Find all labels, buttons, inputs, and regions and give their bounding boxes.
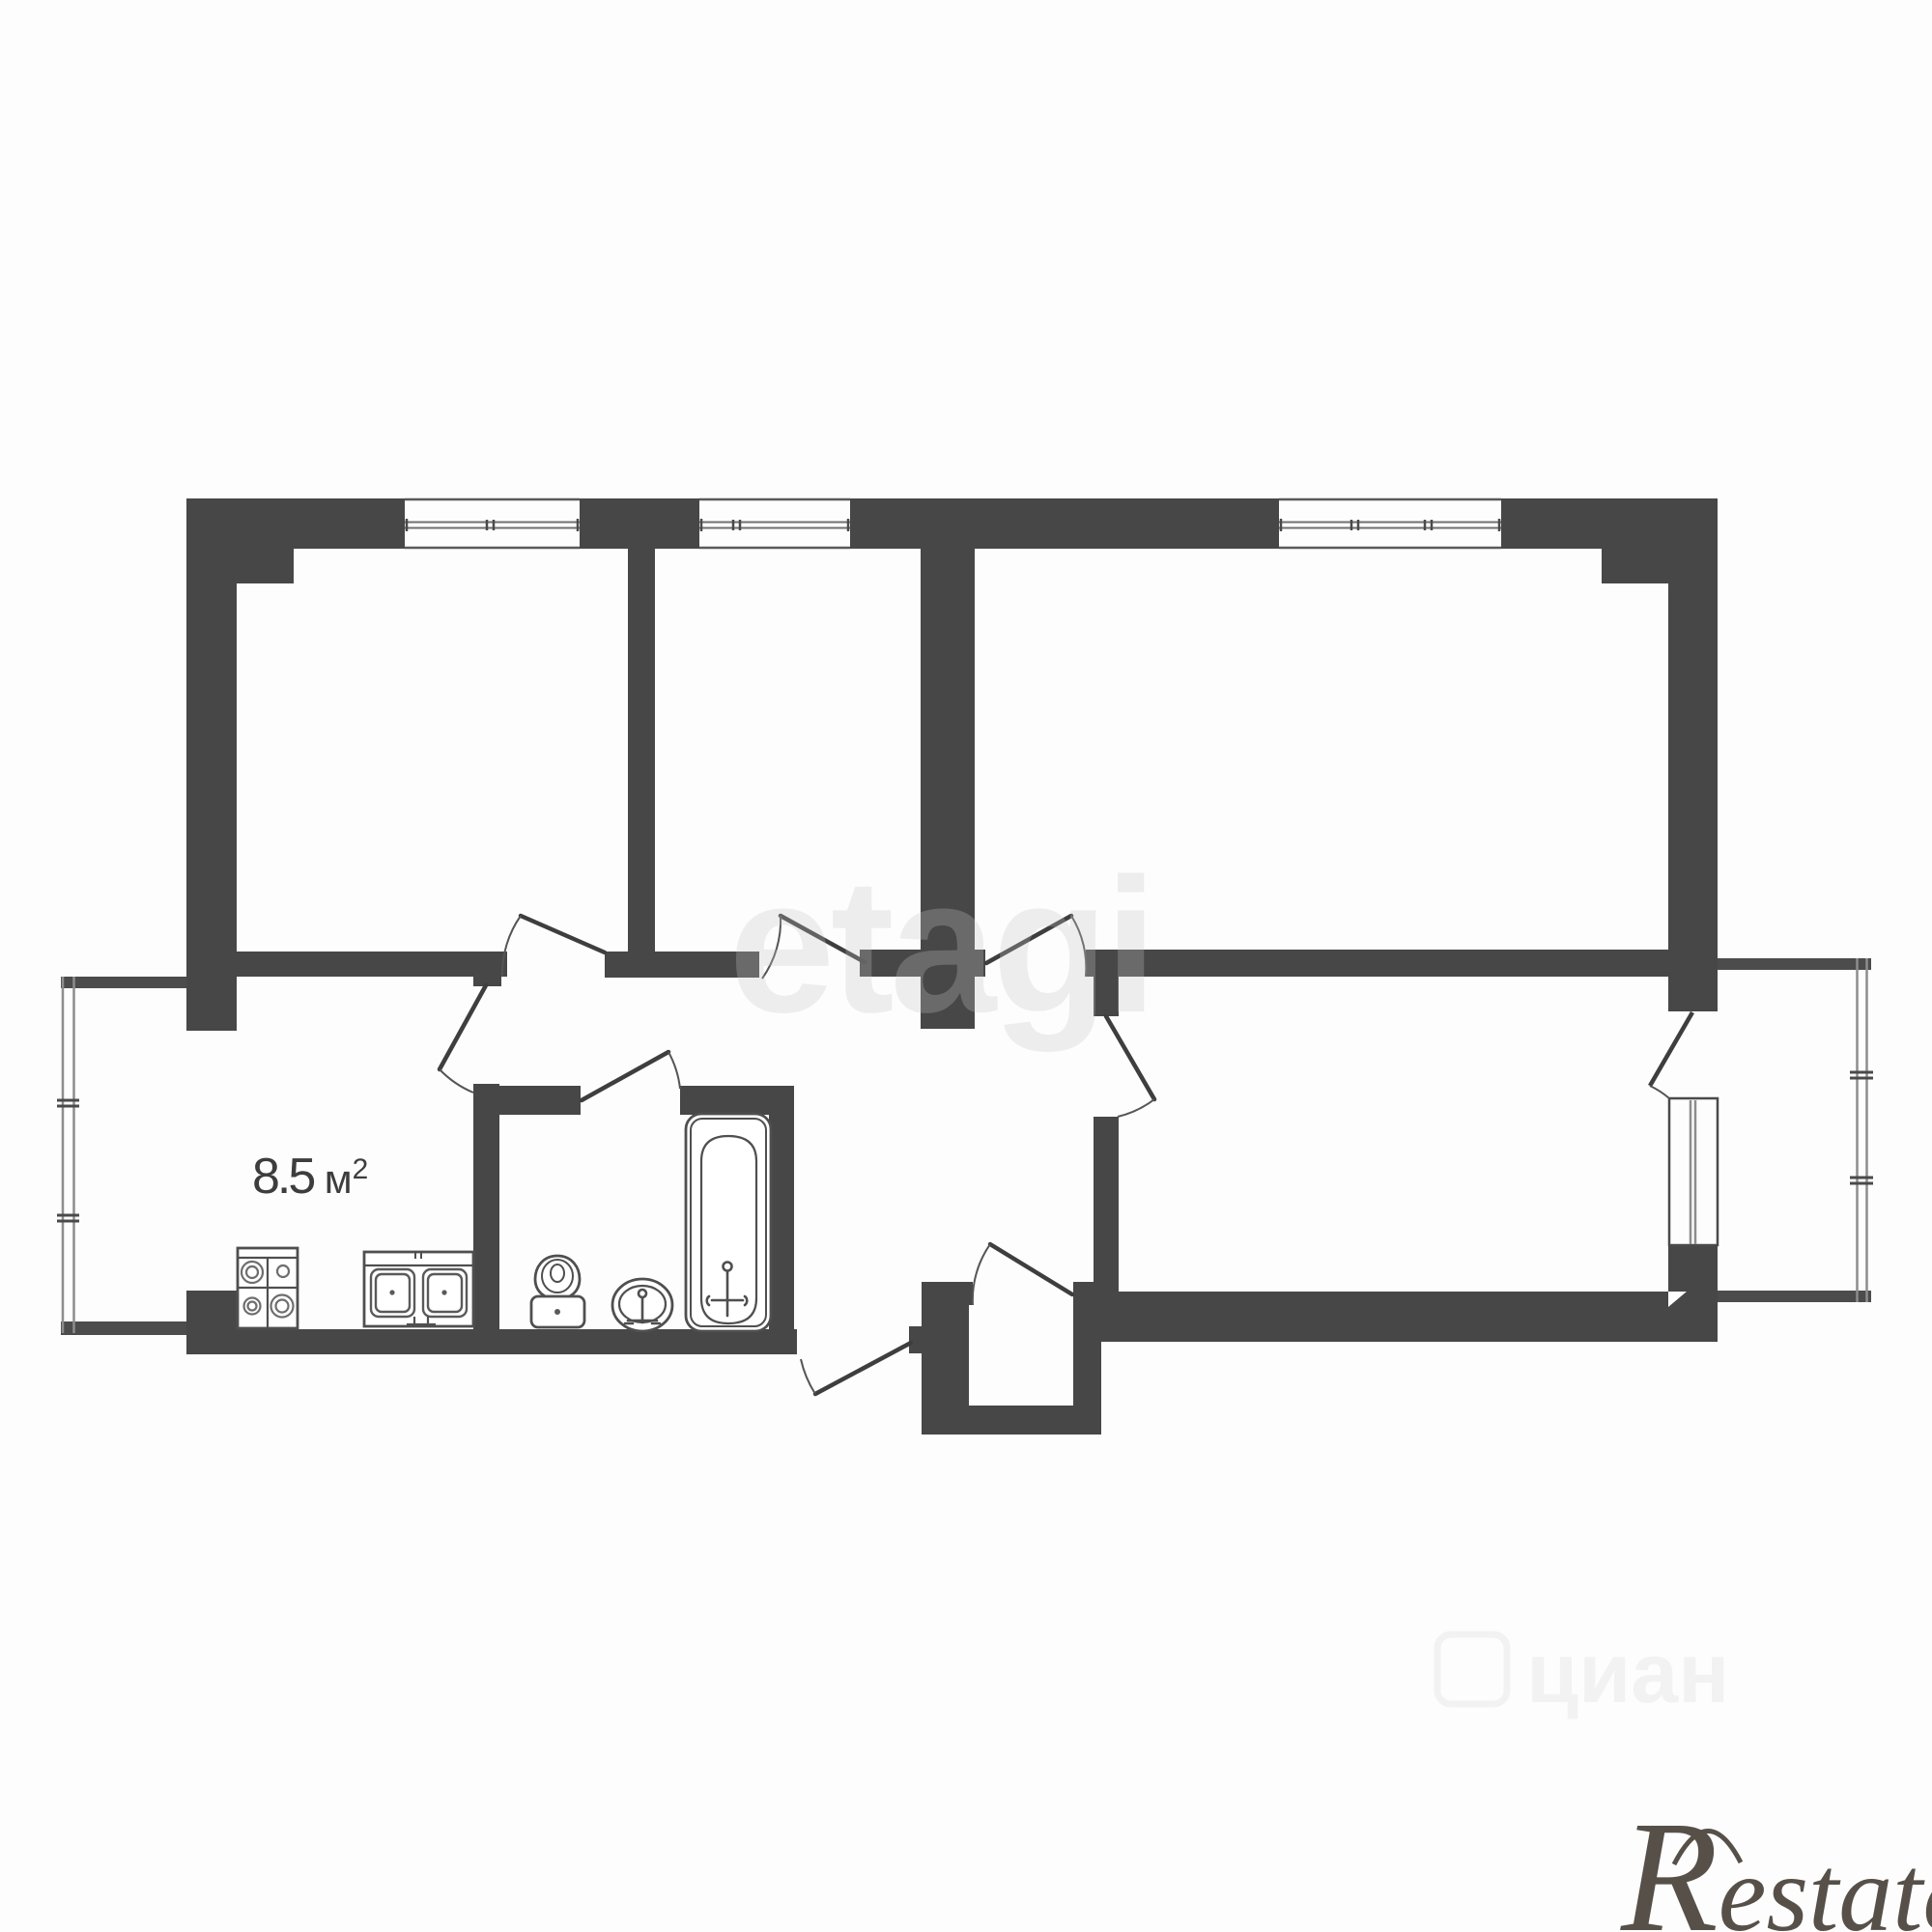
svg-text:etagi: etagi	[728, 838, 1153, 1052]
svg-text:циан: циан	[1526, 1625, 1729, 1720]
svg-text:8.5 м2: 8.5 м2	[252, 1149, 368, 1205]
